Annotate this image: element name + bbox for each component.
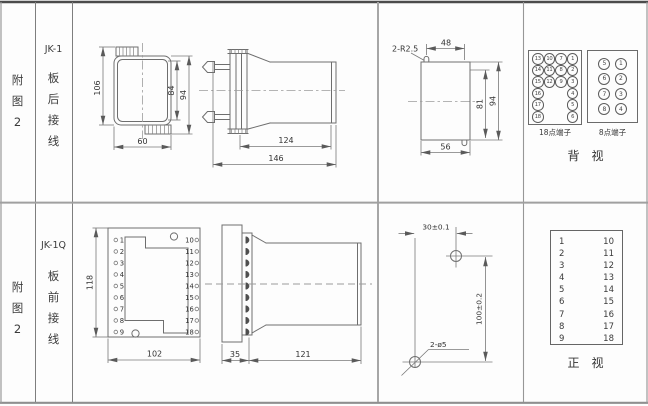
model-label-jk1: JK-1	[35, 44, 72, 55]
caption-8pt: 8点端子	[587, 127, 638, 138]
figure-label-top: 附 图 2	[0, 70, 35, 133]
terminal-number: 8	[120, 317, 124, 325]
terminal-number-table: 1 2 3 4 5 6 7 8 9 10 11 12 13 14 15 16 1…	[550, 230, 623, 345]
terminal-number: 14	[185, 282, 194, 290]
terminal-spacer	[556, 100, 566, 110]
terminal-circle: 14	[532, 65, 544, 77]
terminal-block-18pt: 13 10 7 1 14 11 8 2 15 12 9 3 16 4 17 5 …	[528, 50, 582, 125]
wiring-label-top: 板 后 接 线	[35, 68, 72, 152]
dim-label: 94	[489, 96, 498, 106]
terminal-circle: 7	[555, 53, 567, 65]
dim-label: 118	[86, 275, 95, 290]
terminal-number: 9	[120, 328, 124, 336]
datasheet-page: 106 84 94 60 124 146	[0, 0, 648, 406]
terminal-table-right-column: 10 11 12 13 14 15 16 17 18	[603, 236, 614, 344]
dim-label: 106	[93, 80, 102, 95]
terminal-circle: 10	[544, 53, 556, 65]
terminal-table-left-column: 1 2 3 4 5 6 7 8 9	[559, 236, 564, 344]
dim-label: 48	[441, 39, 451, 48]
jk1q-side-view: 35 121	[205, 225, 372, 364]
mounting-hole	[132, 330, 139, 337]
terminal-circle: 5	[567, 99, 579, 111]
mounting-hole	[170, 233, 177, 240]
terminal-circle: 18	[532, 111, 544, 123]
terminal-circle: 12	[544, 76, 556, 88]
terminal-number: 16	[185, 305, 194, 313]
dim-label: 56	[440, 143, 450, 152]
dim-label: 146	[268, 154, 283, 163]
dim-label: 100±0.2	[475, 293, 484, 325]
caption-18pt: 18点端子	[528, 127, 582, 138]
terminal-number: 2	[120, 248, 124, 256]
terminal-spacer	[556, 89, 566, 99]
terminal-circle: 2	[567, 65, 579, 77]
jk1-rear-cutout-view: 2-R2.5 48 81 94 56	[392, 39, 503, 156]
terminal-number: 1	[120, 236, 124, 244]
model-label-jk1q: JK-1Q	[35, 240, 72, 251]
terminal-circle: 8	[598, 103, 610, 115]
dim-label: 30±0.1	[422, 223, 450, 232]
terminal-circle: 2	[615, 73, 627, 85]
terminal-circle: 17	[532, 99, 544, 111]
terminal-circle: 3	[615, 88, 627, 100]
terminal-number: 11	[185, 248, 194, 256]
terminal-number: 15	[185, 294, 194, 302]
terminal-circle: 11	[544, 65, 556, 77]
back-view-caption: 背 视	[524, 147, 647, 164]
terminal-block-8pt: 5 1 6 2 7 3 8 4	[587, 50, 638, 123]
dim-label: 81	[476, 99, 485, 109]
terminal-circle: 6	[567, 111, 579, 123]
terminal-spacer	[545, 100, 555, 110]
terminal-number: 12	[185, 259, 194, 267]
dim-label: 121	[295, 350, 310, 359]
terminal-circle: 16	[532, 88, 544, 100]
terminal-circle: 1	[567, 53, 579, 65]
terminal-number: 5	[120, 282, 124, 290]
dim-label: 124	[278, 136, 293, 145]
terminal-number: 17	[185, 317, 194, 325]
dim-label: 94	[179, 90, 188, 100]
figure-label-bottom: 附 图 2	[0, 277, 35, 340]
terminal-circle: 4	[567, 88, 579, 100]
terminal-circle: 7	[598, 88, 610, 100]
terminal-number: 13	[185, 271, 194, 279]
terminal-circle: 3	[567, 76, 579, 88]
jk1q-drilling-plan: 30±0.1 100±0.2 2-ø5	[399, 223, 493, 376]
jk1-side-view: 124 146	[199, 50, 345, 168]
wiring-label-bottom: 板 前 接 线	[35, 266, 72, 350]
dim-label: 35	[230, 350, 240, 359]
terminal-number: 10	[185, 236, 194, 244]
terminal-circle: 9	[555, 76, 567, 88]
hole-note: 2-ø5	[430, 340, 447, 349]
terminal-spacer	[556, 112, 566, 122]
terminal-circle: 13	[532, 53, 544, 65]
terminal-number: 4	[120, 271, 124, 279]
dim-label: 60	[137, 137, 147, 146]
terminal-spacer	[545, 89, 555, 99]
terminal-circle: 4	[615, 103, 627, 115]
terminal-circle: 5	[598, 58, 610, 70]
terminal-number: 18	[185, 328, 194, 336]
terminal-circle: 6	[598, 73, 610, 85]
terminal-spacer	[545, 112, 555, 122]
terminal-number: 3	[120, 259, 124, 267]
jk1-outline-front-view: 106 84 94 60	[93, 43, 193, 150]
dim-label: 102	[147, 350, 162, 359]
terminal-circle: 8	[555, 65, 567, 77]
terminal-number: 7	[120, 305, 124, 313]
radius-note: 2-R2.5	[392, 45, 418, 54]
terminal-circle: 1	[615, 58, 627, 70]
dim-label: 84	[167, 85, 176, 95]
terminal-number: 6	[120, 294, 124, 302]
terminal-circle: 15	[532, 76, 544, 88]
jk1q-front-view: 1 2 3 4 5 6 7 8 9 10 11 12 13 14 15 16 1…	[86, 228, 201, 363]
front-view-caption: 正 视	[524, 354, 647, 371]
